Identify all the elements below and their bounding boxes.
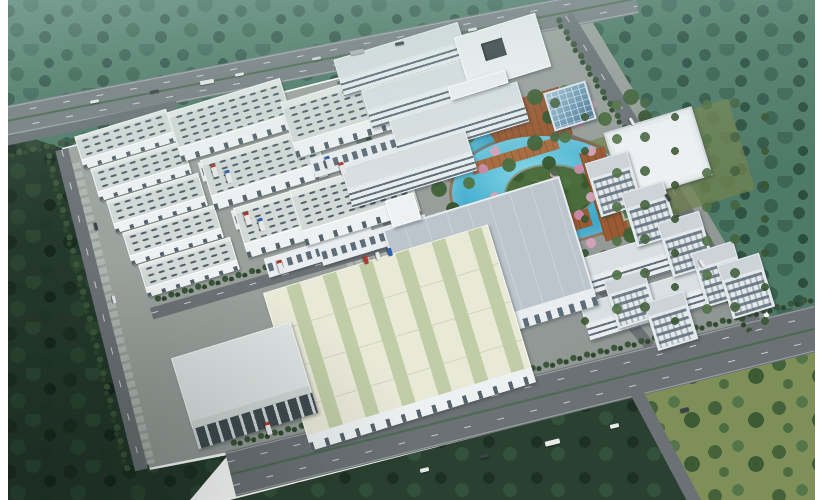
white-frame-left: [0, 0, 8, 500]
aerial-rendering: [0, 0, 840, 500]
white-frame-right: [815, 0, 840, 500]
atrium-opening: [481, 38, 507, 62]
